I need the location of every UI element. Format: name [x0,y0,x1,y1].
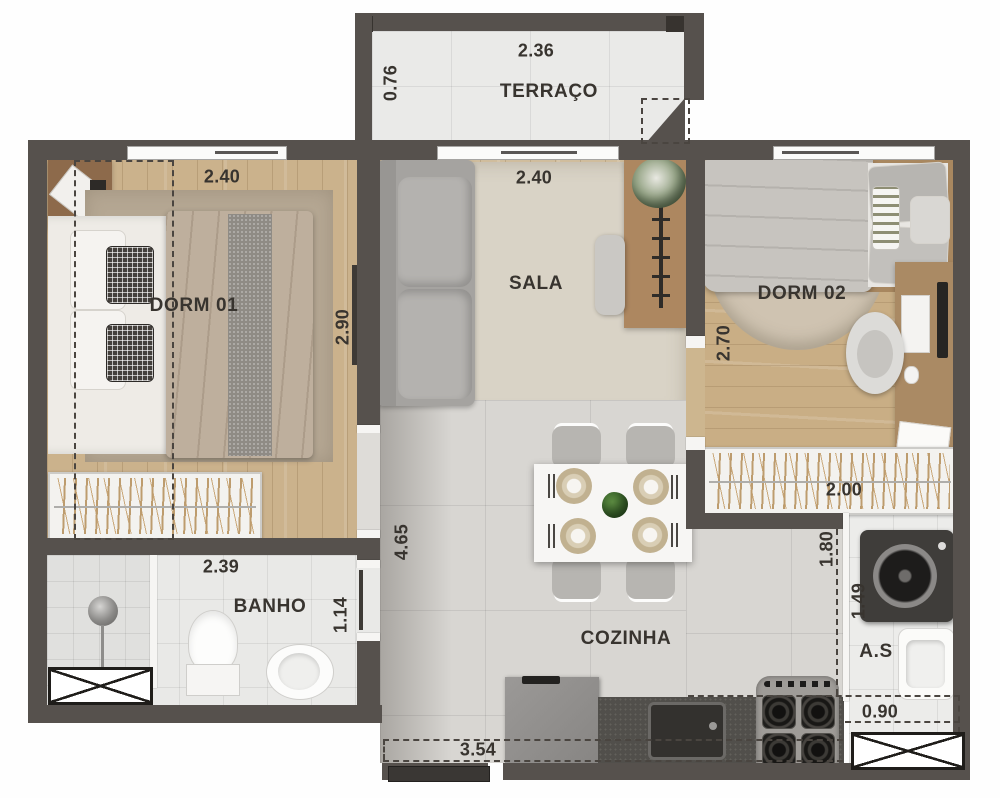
banho-door-leaf [359,570,363,630]
dorm01-door-frame-top [357,425,380,433]
dorm02-window [773,146,935,160]
stove-burner-1 [762,695,796,729]
shower-drain [88,596,118,626]
service-label: A.S [859,641,892,663]
kitchen-measure-line-top [383,739,843,741]
kitchen-faucet [709,722,717,730]
dorm01-window-sash [215,151,278,154]
dorm01-door-frame-bottom [357,530,380,538]
dorm01-depth-dim: 2.90 [333,309,354,345]
dorm01-width-dim: 2.40 [204,167,240,188]
fridge-handle [522,676,560,684]
kitchen-corridor-shade [380,400,452,763]
dorm01-sala-wall [357,158,380,425]
sideboard-decor-branch [652,202,670,308]
dorm02-door-opening [686,348,705,437]
dorm02-door-frame-top [686,336,705,348]
washing-machine-button [938,542,946,550]
dorm01-door-opening [357,433,380,530]
terrace-column-right [666,16,684,32]
kitchen-sink [648,702,726,760]
banho-door-frame-bottom [357,633,380,641]
sofa-cushion-1 [398,177,472,287]
cutlery-1 [548,474,550,498]
dorm02-office-chair-seat [857,330,893,378]
dorm02-label: DORM 02 [758,283,847,305]
toilet-tank [186,664,240,696]
terrace-right-wall [684,13,704,100]
dorm02-monitor [937,282,948,358]
terraco-label: TERRAÇO [500,81,598,103]
dorm01-window [127,146,287,160]
place-setting-4 [632,517,668,553]
cozinha-width-dim: 3.54 [460,740,496,761]
stove-burner-2 [801,695,835,729]
laundry-tub-basin [906,640,945,688]
stove-knobs [764,681,832,687]
terraco-depth-dim: 0.76 [381,65,402,101]
place-setting-1 [556,468,592,504]
dining-chair-2 [626,426,675,468]
service-measure-line-top [688,695,960,697]
fridge [505,677,599,763]
dorm01-projection-dashed [74,160,174,540]
dorm01-banho-wall [47,538,357,555]
banho-shaft-box [48,667,153,705]
entry-door-leaf [388,766,490,782]
dorm02-bottom-wall [686,513,843,529]
toilet-bowl [188,610,238,672]
left-wall [28,140,47,723]
dorm02-wardrobe-dim: 2.00 [826,480,862,501]
dining-chair-3 [552,557,601,599]
dorm02-depth-dim: 2.70 [714,325,735,361]
banho-depth-dim: 1.14 [331,597,352,633]
sala-window [437,146,619,160]
sala-label: SALA [509,273,563,295]
mid-wall-segment [357,538,380,560]
right-wall [953,140,970,780]
cozinha-depth-dim: 4.65 [392,524,413,560]
dorm02-bed-duvet [703,160,873,292]
floor-plan: 0.76 2.36 TERRAÇO 2.40 DORM 01 2.90 2.40… [0,0,1000,798]
sala-dorm02-wall [686,158,705,336]
dorm02-mouse [904,366,919,384]
dorm02-pillow-striped [872,186,900,250]
sala-width-dim: 2.40 [516,168,552,189]
kitchen-measure-line-bottom [383,760,843,762]
bathroom-sink-basin [278,653,320,690]
dining-chair-4 [626,557,675,599]
place-setting-2 [633,469,669,505]
service-width-dim: 0.90 [862,702,898,723]
terrace-projection-dashed [641,98,690,144]
kitchen-measure-line-left [383,739,385,760]
cutlery-2 [676,475,678,499]
cutlery-3 [548,524,550,548]
banho-label: BANHO [234,596,307,618]
dorm02-keyboard [901,295,930,353]
dorm02-door-frame-bottom [686,437,705,450]
terrace-top-wall [355,13,704,31]
banho-width-dim: 2.39 [203,557,239,578]
service-mid-dim: 1.49 [849,583,870,619]
terraco-width-dim: 2.36 [518,41,554,62]
cozinha-label: COZINHA [581,628,672,650]
terrace-left-wall [355,13,372,144]
sala-window-sash [501,151,577,154]
place-setting-3 [560,518,596,554]
dorm02-lower-wall [686,450,705,513]
washing-machine-drum [873,544,937,608]
banho-door-frame-top [357,560,380,568]
dorm01-bed-runner [228,214,272,456]
service-depth-dim: 1.80 [817,531,838,567]
sofa-cushion-2 [398,289,472,399]
service-shaft-box [851,732,965,770]
dorm01-label: DORM 01 [150,295,239,317]
dining-chair-1 [552,426,601,468]
banho-bottom-wall [28,705,382,723]
pouf [595,235,625,315]
dorm02-window-sash [782,151,859,154]
cutlery-4 [676,523,678,547]
dorm02-pillow-3 [910,196,950,244]
